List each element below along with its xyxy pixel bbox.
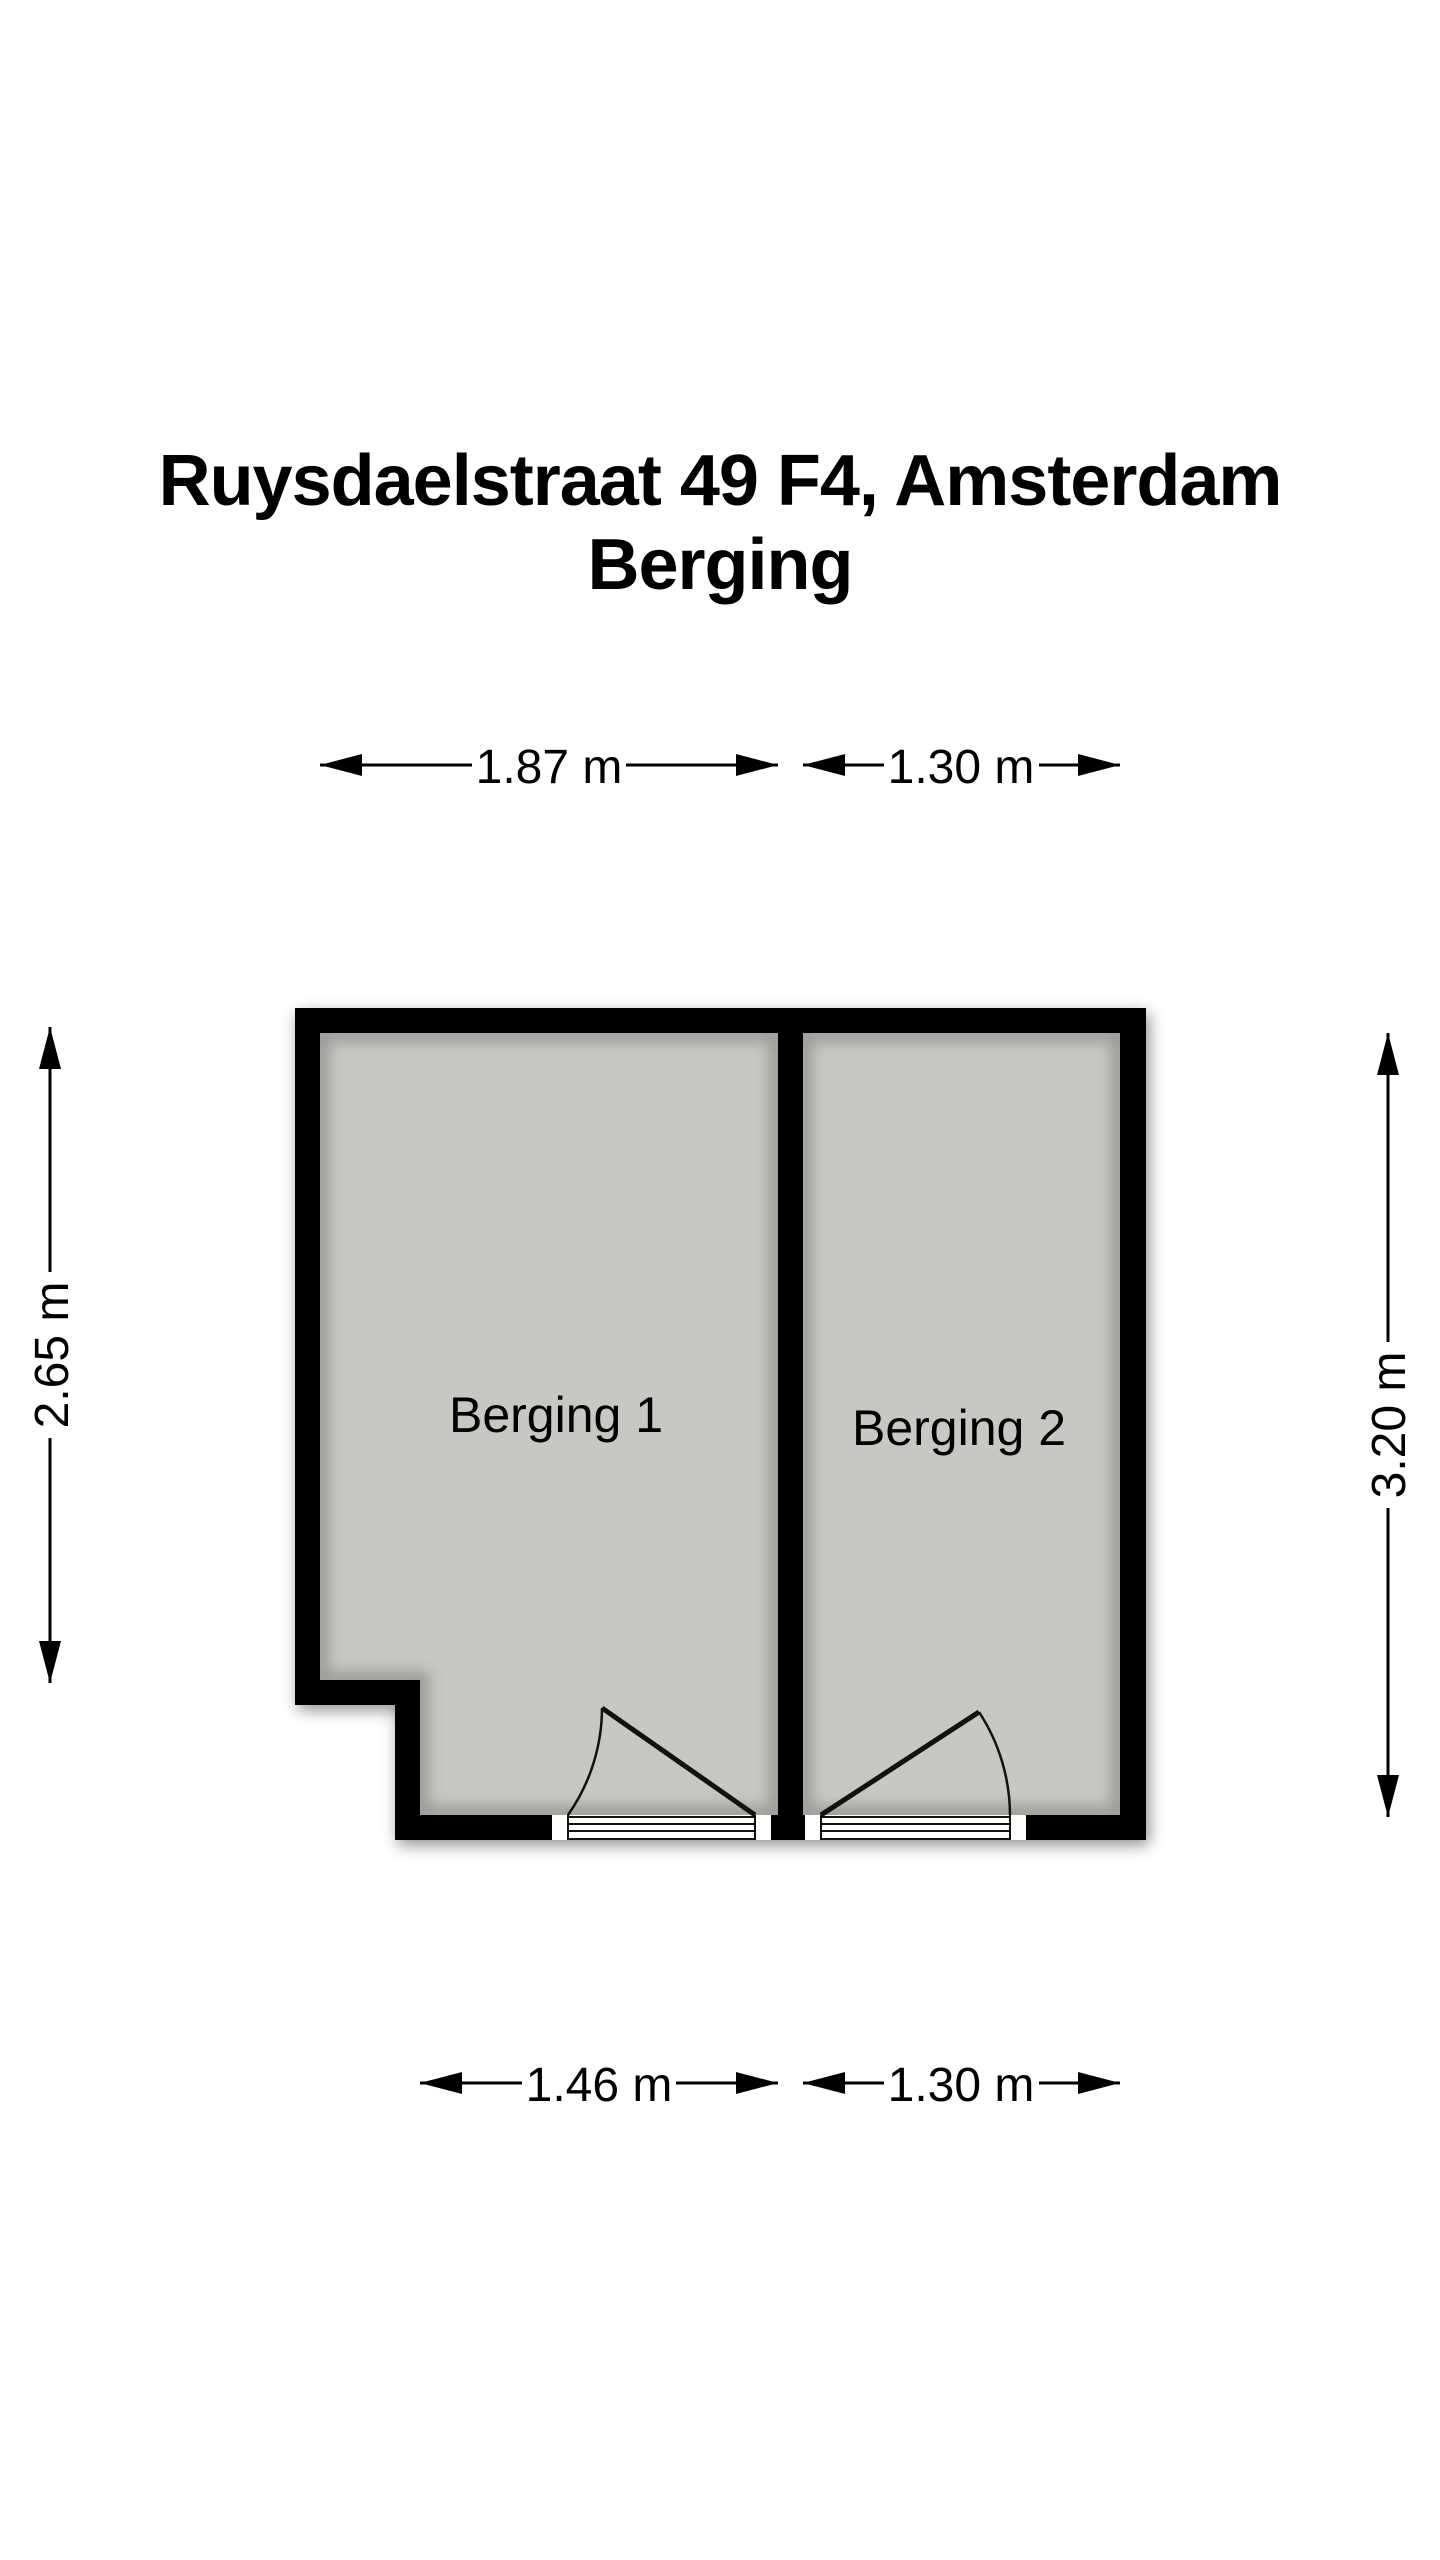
arrow-right-icon [1078,2072,1120,2094]
dimension-left: 2.65 m [26,1027,79,1683]
room-label-berging-1: Berging 1 [449,1387,663,1443]
dimension-right: 3.20 m [1363,1033,1416,1817]
arrow-up-icon [39,1027,61,1069]
dimension-bottom-berging-1: 1.46 m [420,2059,778,2112]
arrow-down-icon [39,1641,61,1683]
arrow-right-icon [736,2072,778,2094]
arrow-up-icon [1377,1033,1399,1075]
floorplan-page: Ruysdaelstraat 49 F4, Amsterdam Berging [0,0,1440,2560]
arrow-left-icon [803,2072,845,2094]
arrow-down-icon [1377,1775,1399,1817]
dim-label-left: 2.65 m [26,1282,79,1429]
door-opening-1 [552,1815,771,1840]
title-address: Ruysdaelstraat 49 F4, Amsterdam [159,441,1282,521]
dim-label-right: 3.20 m [1363,1352,1416,1499]
building: Berging 1 Berging 2 [295,1008,1146,1840]
title-subtitle: Berging [587,525,852,605]
arrow-left-icon [803,754,845,776]
arrow-right-icon [1078,754,1120,776]
arrow-left-icon [420,2072,462,2094]
dimension-bottom-berging-2: 1.30 m [803,2059,1120,2112]
dim-label-top-2: 1.30 m [888,741,1035,794]
plan-title: Ruysdaelstraat 49 F4, Amsterdam Berging [159,441,1282,605]
room-label-berging-2: Berging 2 [852,1400,1066,1456]
floorplan-canvas: Ruysdaelstraat 49 F4, Amsterdam Berging [0,0,1440,2560]
dim-label-top-1: 1.87 m [476,741,623,794]
dimension-top-berging-2: 1.30 m [803,741,1120,794]
door-opening-2 [805,1815,1026,1840]
dim-label-bottom-1: 1.46 m [526,2059,673,2112]
arrow-right-icon [736,754,778,776]
dimension-top-berging-1: 1.87 m [320,741,778,794]
dim-label-bottom-2: 1.30 m [888,2059,1035,2112]
arrow-left-icon [320,754,362,776]
